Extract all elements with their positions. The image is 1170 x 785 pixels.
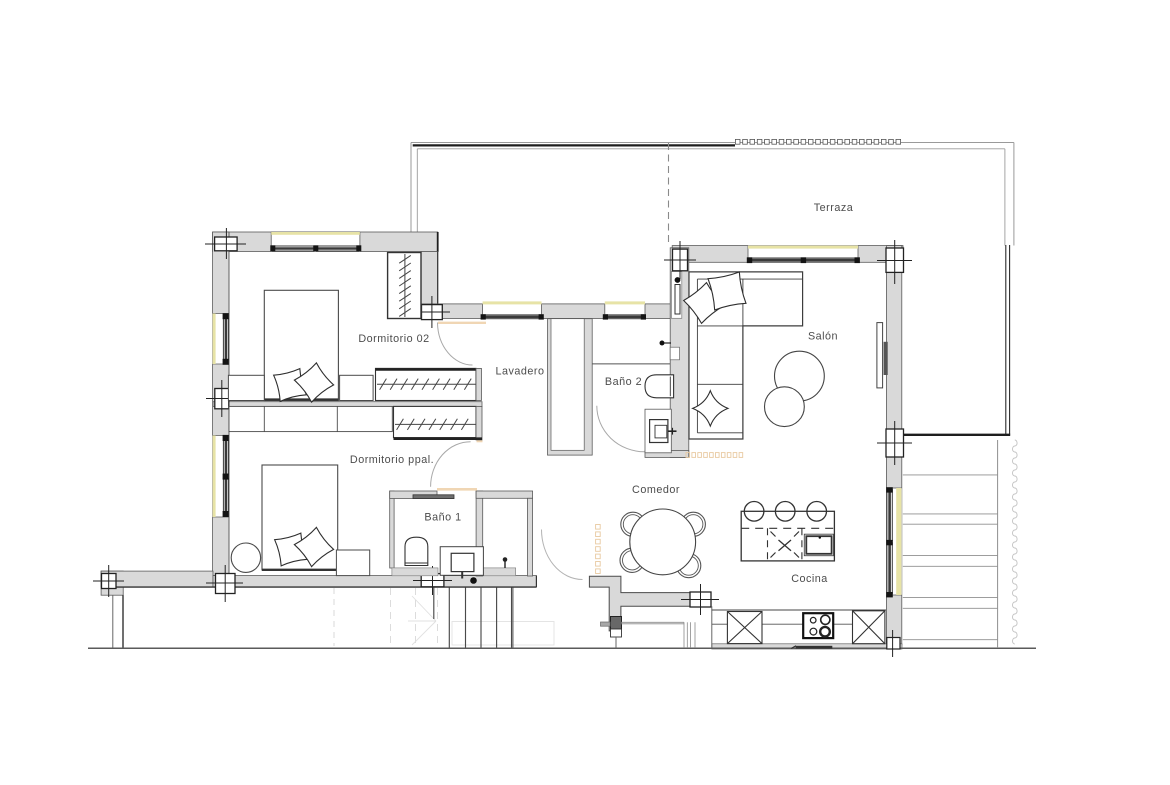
svg-text:Dormitorio ppal.: Dormitorio ppal.	[350, 454, 434, 466]
svg-text:Baño 2: Baño 2	[605, 376, 642, 388]
svg-text:Cocina: Cocina	[791, 573, 828, 585]
svg-text:Dormitorio 02: Dormitorio 02	[358, 333, 429, 345]
svg-text:Lavadero: Lavadero	[495, 366, 544, 378]
svg-text:Salón: Salón	[808, 331, 838, 343]
svg-text:Baño 1: Baño 1	[424, 512, 461, 524]
svg-text:Terraza: Terraza	[814, 202, 854, 214]
svg-text:Comedor: Comedor	[632, 484, 680, 496]
